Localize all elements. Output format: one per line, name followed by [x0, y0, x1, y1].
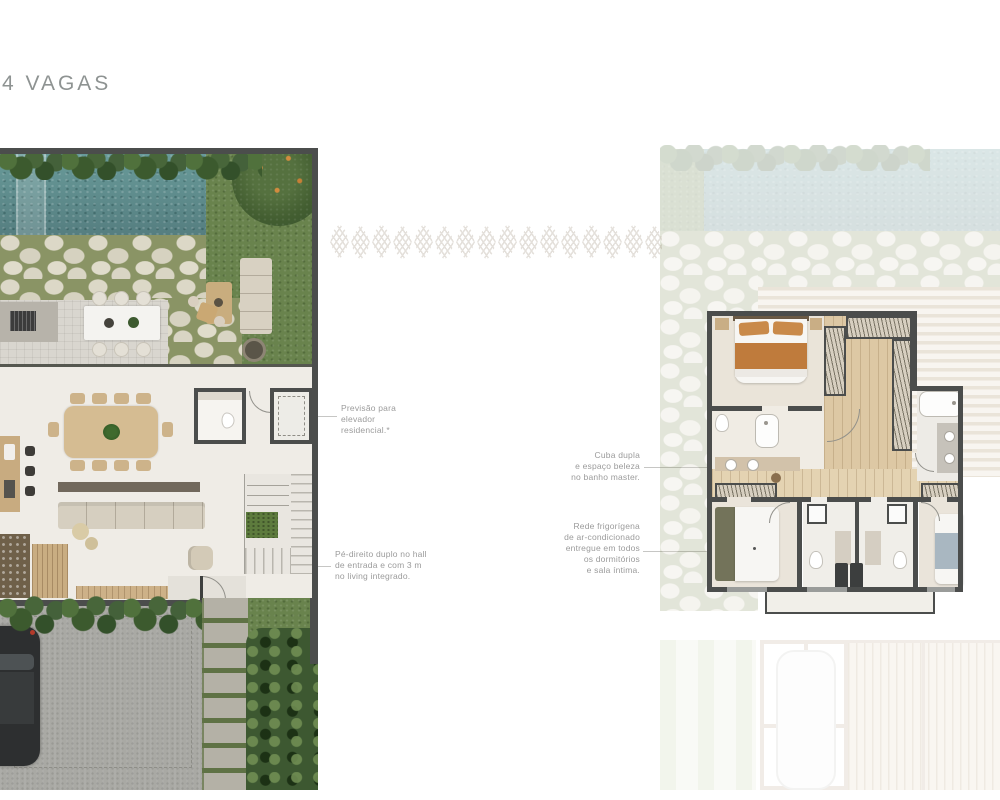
shrubs — [246, 628, 318, 790]
leaf-icon — [372, 224, 391, 260]
basin — [747, 459, 759, 471]
garden-wall-stub — [310, 598, 318, 664]
leaf-icon — [351, 224, 370, 260]
stair-flight-lower — [245, 548, 291, 574]
bath-vanity — [865, 531, 881, 565]
shower — [807, 504, 827, 524]
basin — [944, 453, 955, 464]
wall — [912, 386, 963, 391]
glass-wall — [0, 364, 318, 367]
wardrobe — [892, 339, 912, 451]
door-opening — [931, 497, 947, 502]
beauty-stool — [771, 473, 781, 483]
dining-chair — [70, 460, 85, 471]
annotation-ceiling: Pé-direito duplo no hall de entrada e co… — [335, 549, 455, 582]
ac-point — [753, 547, 756, 550]
pillow — [739, 321, 770, 336]
dining-chair — [70, 393, 85, 404]
sink — [4, 444, 15, 460]
drain — [764, 421, 768, 425]
leaf-icon — [624, 224, 643, 260]
nightstand — [715, 318, 729, 330]
wardrobe — [846, 316, 912, 339]
dining-chair — [114, 393, 129, 404]
leaf-pattern-strip — [330, 224, 662, 262]
kitchen-counter — [0, 436, 20, 512]
window-opening — [807, 587, 847, 592]
toilet — [809, 551, 823, 569]
hedge-overhang — [0, 150, 262, 180]
leaf-icon — [456, 224, 475, 260]
leaf-icon — [477, 224, 496, 260]
wall — [913, 497, 918, 592]
master-bed — [735, 319, 807, 383]
leader-line-ceiling — [318, 566, 331, 567]
dining-chair — [92, 393, 107, 404]
media-rack — [58, 482, 200, 492]
island-counter — [84, 306, 160, 340]
wall — [958, 386, 963, 592]
bistro-chair — [188, 296, 199, 307]
leaf-icon — [519, 224, 538, 260]
wine-rack — [0, 534, 30, 598]
leaf-icon — [330, 224, 349, 260]
fire-pit — [242, 338, 266, 362]
annotation-elevator: Previsão para elevador residencial.* — [341, 403, 431, 436]
ground-floor-plan — [0, 148, 318, 790]
driveway-hedge — [0, 592, 202, 638]
elevator-dashed-outline — [278, 396, 305, 436]
counter-stool — [25, 486, 35, 496]
toilet — [893, 551, 907, 569]
leaf-icon — [435, 224, 454, 260]
parking-outline — [14, 616, 192, 768]
stool — [92, 291, 107, 306]
upper-floor-plan — [707, 311, 963, 617]
car — [0, 626, 40, 766]
toilet — [715, 414, 729, 432]
annotation-master-bath: Cuba dupla e espaço beleza no banho mast… — [555, 450, 640, 483]
armchair — [188, 546, 213, 570]
dark-door-leaf — [835, 563, 848, 590]
east-wall — [312, 148, 318, 600]
wall — [707, 311, 712, 592]
leaf-icon — [603, 224, 622, 260]
nightstand — [810, 318, 822, 330]
wall — [707, 311, 917, 316]
bathtub — [755, 414, 779, 448]
dining-chair — [114, 460, 129, 471]
bistro-chair — [214, 316, 225, 327]
shower — [887, 504, 907, 524]
cooktop — [4, 480, 15, 498]
dining-chair — [48, 422, 59, 437]
bathtub-2 — [919, 391, 963, 417]
stair-dashed-overhead — [247, 476, 289, 510]
ghost-hedge — [660, 145, 930, 171]
dining-table — [64, 406, 158, 458]
balcony — [765, 592, 935, 614]
leaf-icon — [561, 224, 580, 260]
window-opening — [927, 587, 955, 592]
leaf-icon — [498, 224, 517, 260]
door-opening — [871, 497, 887, 502]
throw — [735, 369, 807, 377]
door-opening — [727, 497, 751, 502]
counter-plant — [128, 317, 139, 328]
dark-door-leaf — [850, 563, 863, 590]
garage-driveway — [0, 606, 318, 790]
bbq-counter — [0, 302, 58, 342]
counter-stool — [25, 446, 35, 456]
drain — [952, 401, 956, 405]
counter-stool — [25, 466, 35, 476]
leaf-icon — [393, 224, 412, 260]
elevator-shaft — [270, 388, 313, 444]
pantry — [32, 544, 68, 598]
grill — [10, 311, 36, 331]
north-wall — [0, 148, 318, 154]
toilet — [222, 413, 235, 429]
counter-pot — [104, 318, 114, 328]
annotation-hvac: Rede frigorígena de ar-condicionado entr… — [545, 521, 640, 576]
leaf-icon — [582, 224, 601, 260]
pouf — [85, 537, 98, 550]
door-arc — [249, 391, 271, 413]
leader-line-elevator — [318, 416, 337, 417]
inner-garden — [246, 512, 278, 538]
deck-divider — [922, 643, 925, 790]
page-title: 4 VAGAS — [2, 72, 111, 96]
ghost-carport — [760, 640, 848, 790]
ghost-wood-deck — [848, 640, 1000, 790]
ghost-white-car — [776, 650, 836, 790]
partition-wall — [855, 501, 859, 563]
car-windshield — [0, 654, 34, 670]
door-opening — [811, 497, 827, 502]
stool — [114, 291, 129, 306]
stool — [136, 342, 151, 357]
vanity — [198, 392, 242, 400]
stool — [92, 342, 107, 357]
double-vanity — [715, 457, 800, 471]
dining-chair — [162, 422, 173, 437]
window-opening — [727, 587, 767, 592]
stool — [136, 291, 151, 306]
dining-chair — [92, 460, 107, 471]
powder-room — [194, 388, 246, 444]
dining-chair — [136, 460, 151, 471]
stair-flight — [291, 474, 314, 574]
blanket-orange — [735, 343, 807, 369]
wall — [797, 497, 802, 592]
bed2-throw-olive — [715, 507, 735, 581]
centerpiece-plant — [103, 424, 120, 440]
leaf-icon — [540, 224, 559, 260]
wardrobe — [824, 326, 846, 396]
dining-chair — [136, 393, 151, 404]
stool — [114, 342, 129, 357]
wall — [912, 311, 917, 391]
basin — [944, 431, 955, 442]
car-roof — [0, 672, 34, 724]
pillow — [773, 321, 804, 336]
ghost-green-strips — [660, 640, 756, 790]
brochure-page: 4 VAGAS — [0, 0, 1000, 800]
leaf-icon — [414, 224, 433, 260]
outdoor-sofa — [240, 258, 272, 334]
door-opening — [762, 406, 788, 411]
stepping-stones — [202, 598, 252, 790]
bath-vanity — [835, 531, 851, 565]
basin — [725, 459, 737, 471]
